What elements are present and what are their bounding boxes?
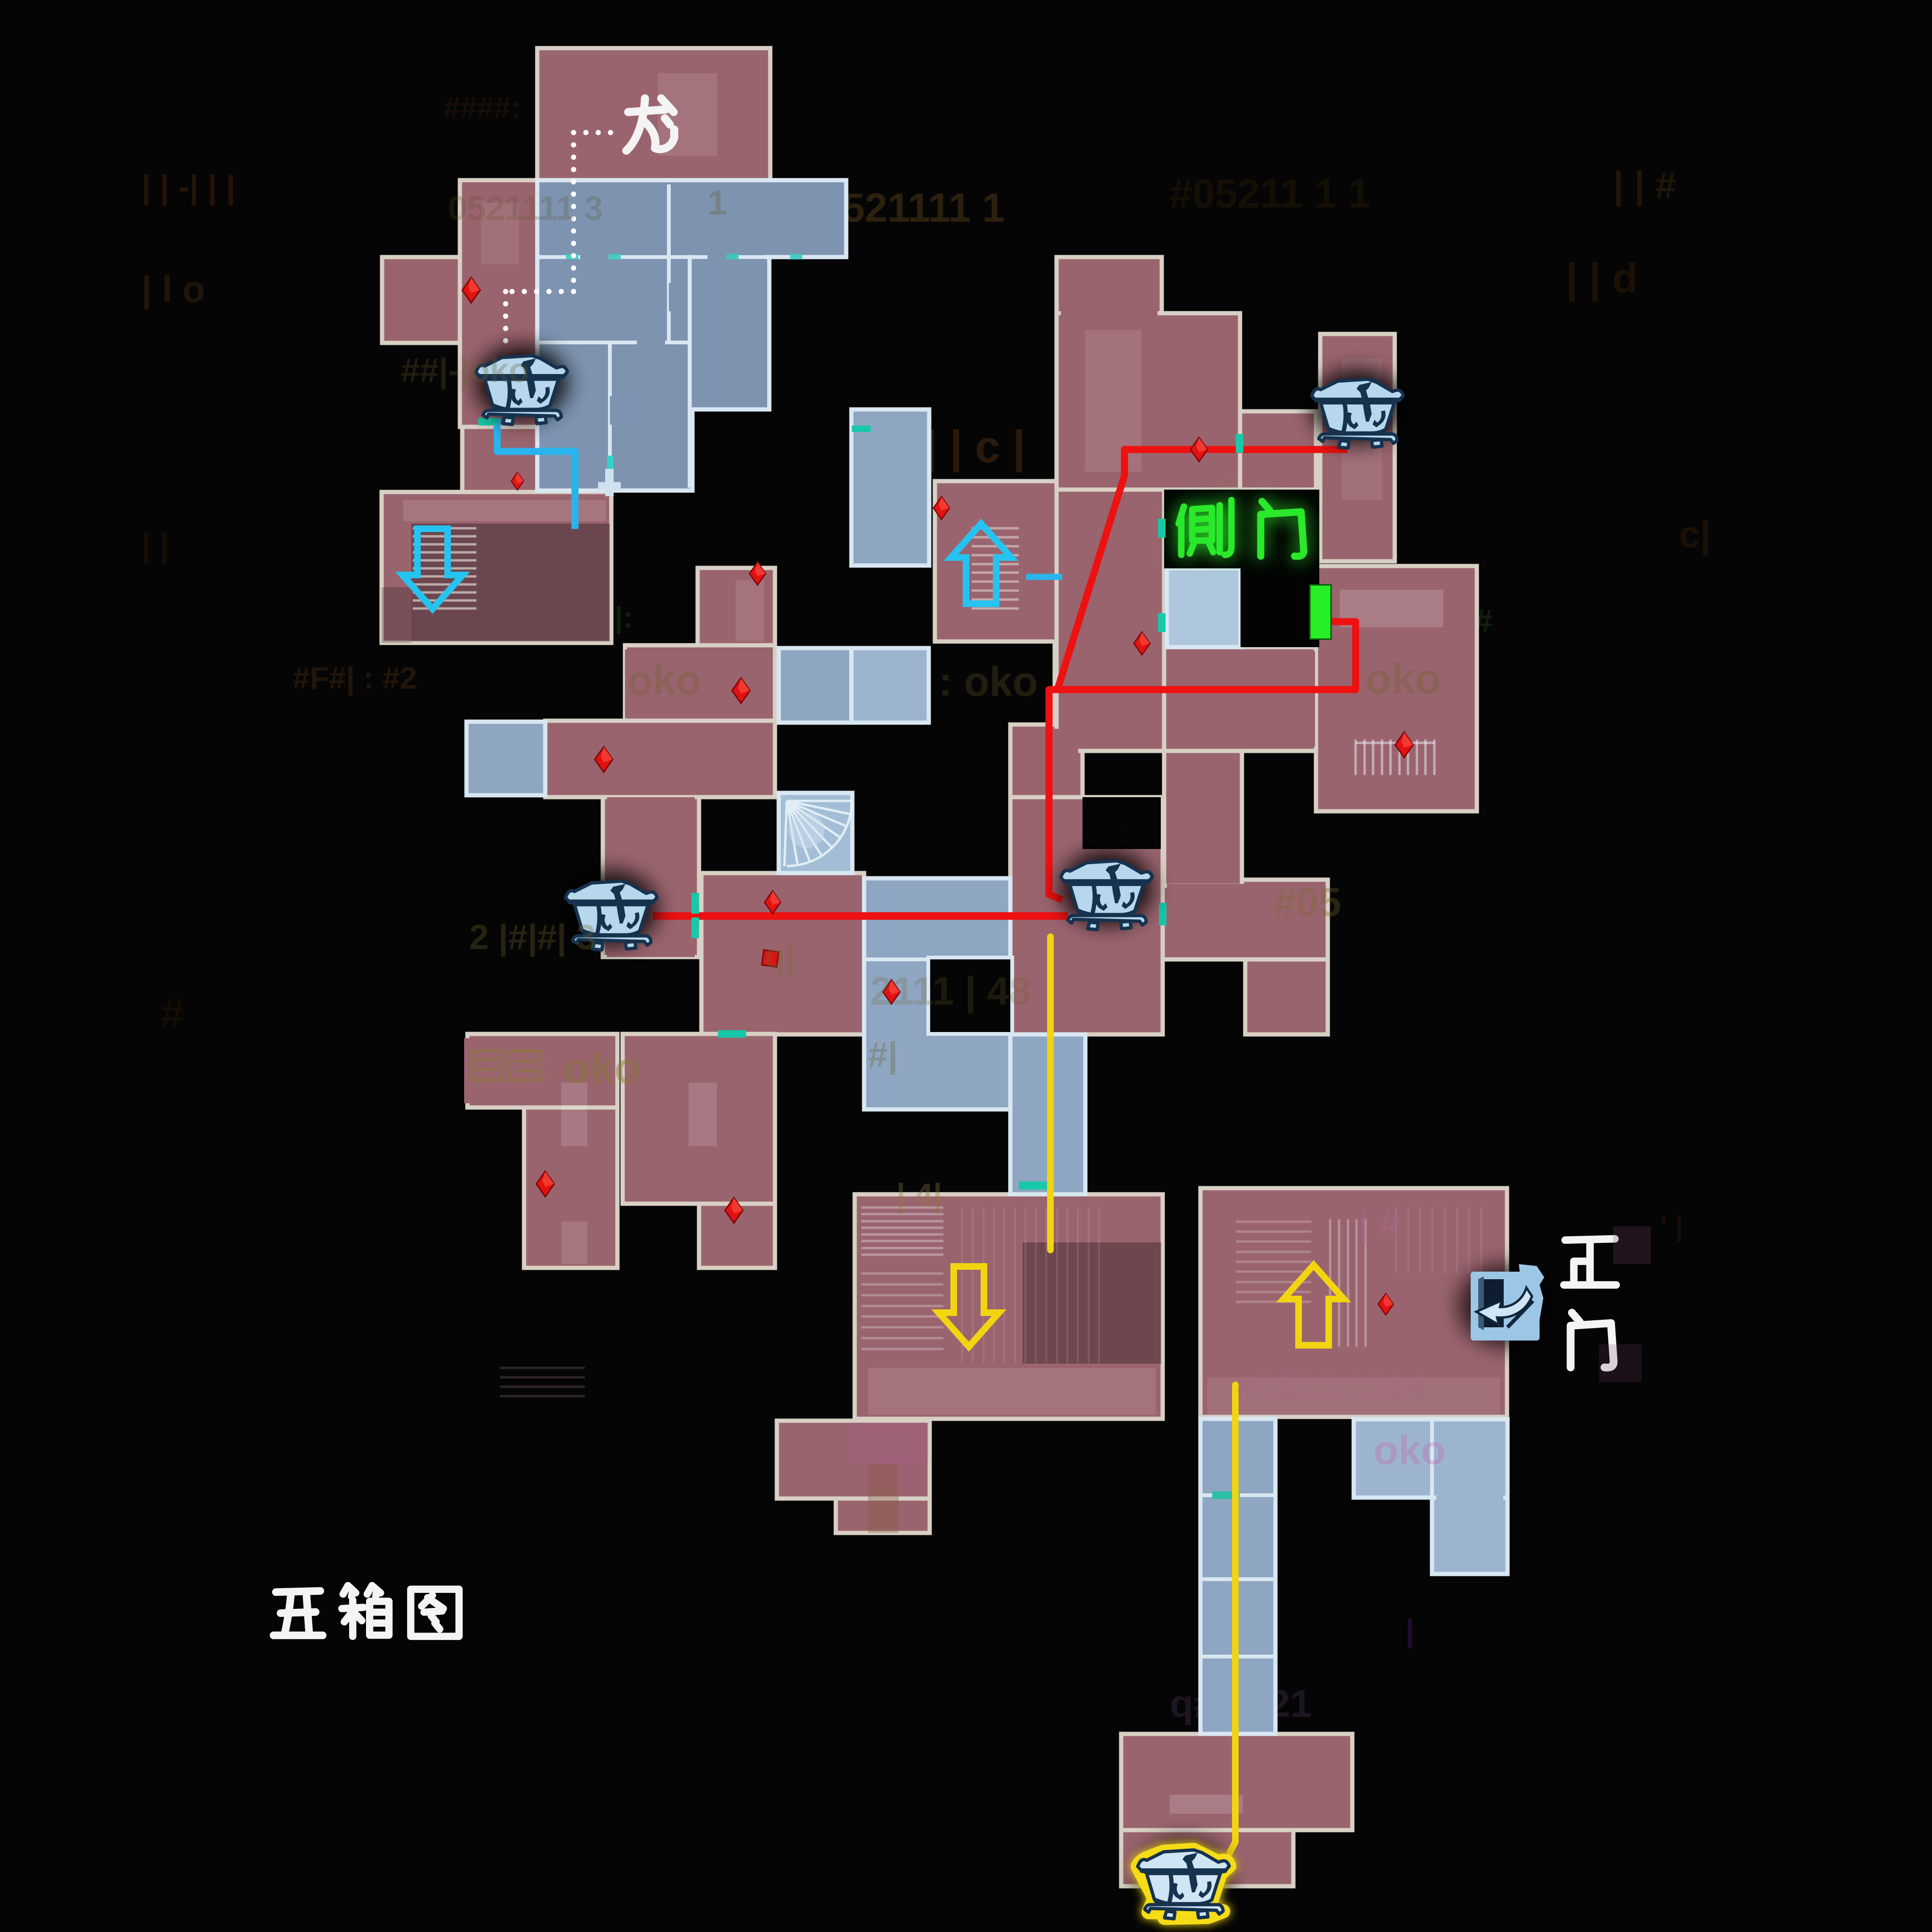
svg-text:| 4|: | 4| — [896, 1177, 942, 1214]
svg-text:| |: | | — [142, 527, 169, 564]
svg-text:####:: ####: — [443, 91, 521, 125]
svg-text:#|: #| — [868, 1035, 898, 1075]
svg-text:| | #: | | # — [1613, 164, 1676, 207]
svg-text:| | -| | |: | | -| | | — [142, 168, 235, 206]
svg-text:0521111 3: 0521111 3 — [448, 190, 603, 227]
svg-text:| #: | # — [1358, 1202, 1400, 1244]
svg-text:#05: #05 — [1274, 880, 1341, 925]
svg-text:oko: oko — [1366, 656, 1441, 703]
svg-text:2 |#|#| 3: 2 |#|#| 3 — [469, 917, 596, 957]
svg-text:2111 | 48: 2111 | 48 — [870, 969, 1031, 1014]
svg-text:' |: ' | — [1660, 1210, 1683, 1242]
svg-text:#0521 1114: #0521 1114 — [1236, 1365, 1426, 1406]
svg-text:oko: oko — [627, 657, 701, 703]
svg-text:#F#| : #2: #F#| : #2 — [292, 660, 417, 696]
svg-text:#: # — [160, 991, 184, 1038]
svg-text:| l o: | l o — [142, 268, 205, 310]
svg-text:| | c |: | | c | — [924, 422, 1025, 473]
svg-text:#05211 1 1: #05211 1 1 — [1170, 171, 1371, 217]
svg-text:: oko: : oko — [939, 658, 1038, 705]
svg-text:oko: oko — [1374, 1428, 1446, 1473]
svg-text:| | d: | | d — [1566, 255, 1638, 302]
svg-text:##|-|oko: ##|-|oko — [401, 352, 529, 390]
svg-text:q|: q| — [764, 936, 795, 976]
svg-text:1: 1 — [708, 183, 727, 222]
svg-text:|: | — [1406, 1613, 1414, 1649]
svg-text:oko: oko — [564, 1044, 641, 1092]
svg-text:c|: c| — [1679, 513, 1711, 556]
